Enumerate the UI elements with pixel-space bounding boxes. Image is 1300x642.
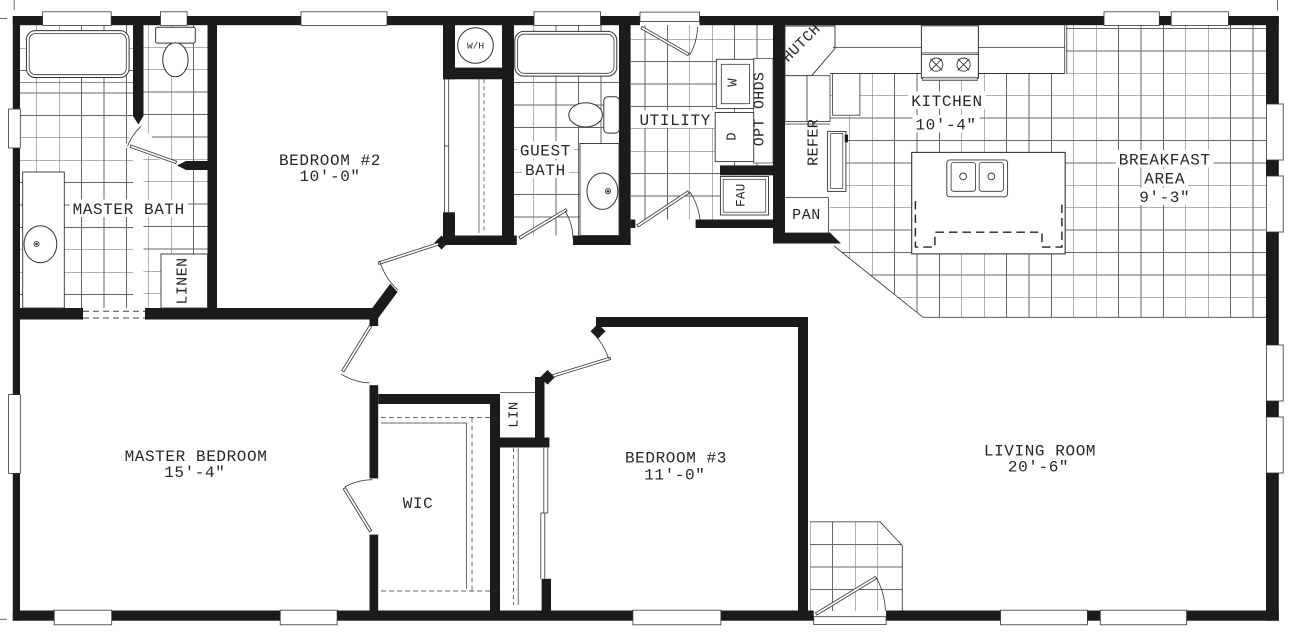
svg-text:REFER: REFER xyxy=(806,119,823,166)
svg-text:D: D xyxy=(725,132,741,140)
svg-text:UTILITY: UTILITY xyxy=(639,112,710,130)
svg-text:OPT OHDS: OPT OHDS xyxy=(752,72,769,146)
svg-text:BREAKFAST: BREAKFAST xyxy=(1119,152,1211,170)
svg-text:GUEST: GUEST xyxy=(520,143,571,161)
svg-text:LIN: LIN xyxy=(507,401,523,427)
svg-text:BATH: BATH xyxy=(525,162,566,180)
svg-text:AREA: AREA xyxy=(1144,170,1185,188)
svg-text:10'-0": 10'-0" xyxy=(299,168,360,186)
svg-text:11'-0": 11'-0" xyxy=(644,467,705,485)
svg-text:KITCHEN: KITCHEN xyxy=(911,93,982,111)
svg-text:LINEN: LINEN xyxy=(175,257,192,304)
svg-text:PAN: PAN xyxy=(792,207,821,224)
svg-text:10'-4": 10'-4" xyxy=(915,117,976,135)
svg-text:WIC: WIC xyxy=(403,495,434,513)
svg-text:W: W xyxy=(726,78,742,87)
svg-text:20'-6": 20'-6" xyxy=(1008,459,1069,477)
svg-text:MASTER BATH: MASTER BATH xyxy=(73,201,185,219)
svg-text:FAU: FAU xyxy=(735,183,749,206)
svg-text:9'-3": 9'-3" xyxy=(1139,189,1190,207)
svg-text:W/H: W/H xyxy=(467,41,484,52)
svg-text:BEDROOM #3: BEDROOM #3 xyxy=(625,449,727,467)
svg-text:15'-4": 15'-4" xyxy=(164,464,225,482)
